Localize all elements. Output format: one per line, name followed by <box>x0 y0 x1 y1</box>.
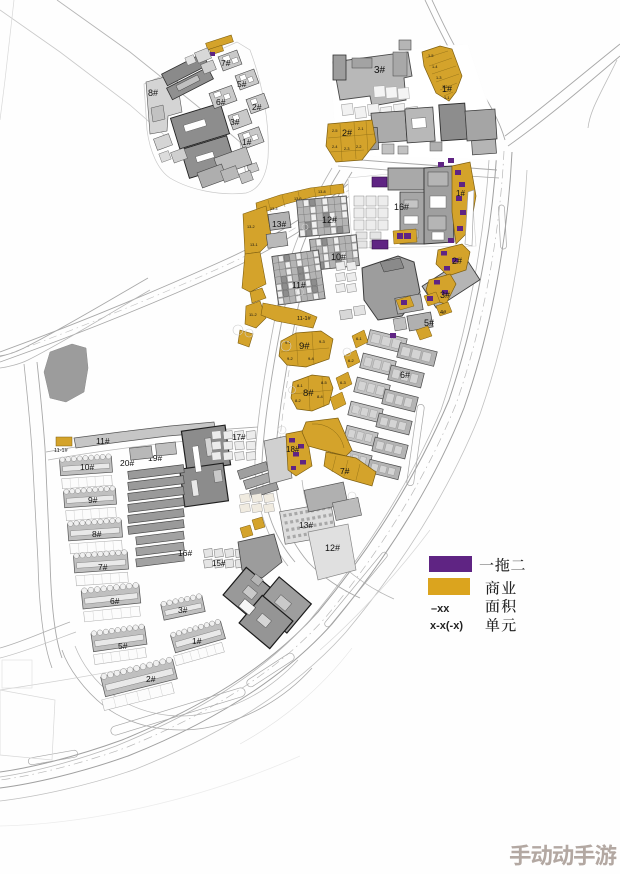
svg-text:15#: 15# <box>212 559 226 568</box>
svg-text:8-1: 8-1 <box>297 383 304 388</box>
svg-text:8-2: 8-2 <box>295 398 302 403</box>
svg-text:12#: 12# <box>325 543 340 553</box>
svg-text:8#: 8# <box>148 88 158 98</box>
svg-text:11-1#: 11-1# <box>297 316 312 322</box>
svg-text:–xx: –xx <box>431 603 450 615</box>
svg-text:13#: 13# <box>272 219 286 229</box>
svg-text:1-4: 1-4 <box>432 65 438 69</box>
svg-text:6-2: 6-2 <box>348 358 355 363</box>
svg-text:6#: 6# <box>110 596 120 606</box>
svg-text:13#: 13# <box>299 520 313 530</box>
svg-text:8#: 8# <box>303 388 314 399</box>
svg-text:3#: 3# <box>230 117 240 127</box>
svg-text:9-4: 9-4 <box>308 356 315 361</box>
svg-text:2#: 2# <box>146 674 156 684</box>
svg-text:1#: 1# <box>192 636 202 646</box>
svg-text:1-5: 1-5 <box>428 54 434 58</box>
svg-text:1#: 1# <box>242 137 252 147</box>
svg-text:5#: 5# <box>424 318 434 328</box>
svg-text:4#: 4# <box>440 310 447 316</box>
svg-text:5#: 5# <box>118 641 128 651</box>
svg-text:7#: 7# <box>98 562 108 572</box>
svg-text:3#: 3# <box>374 65 386 76</box>
svg-text:5#: 5# <box>237 79 247 89</box>
svg-text:9-3: 9-3 <box>319 339 326 344</box>
svg-text:18#: 18# <box>286 445 300 454</box>
svg-text:1-1: 1-1 <box>444 96 450 100</box>
svg-text:8-5: 8-5 <box>321 380 328 385</box>
svg-text:6-1: 6-1 <box>356 336 363 341</box>
svg-text:9#: 9# <box>88 495 98 505</box>
svg-text:13-1: 13-1 <box>250 243 258 247</box>
svg-text:10#: 10# <box>331 252 346 262</box>
svg-text:11-2: 11-2 <box>249 312 257 317</box>
svg-text:11-1#: 11-1# <box>54 448 69 454</box>
svg-text:3#: 3# <box>440 290 450 300</box>
svg-text:8-4: 8-4 <box>317 394 324 399</box>
svg-text:6#: 6# <box>400 370 410 380</box>
svg-text:1#: 1# <box>456 189 465 198</box>
svg-text:10#: 10# <box>80 462 94 472</box>
svg-text:12#: 12# <box>322 215 337 225</box>
svg-text:2#: 2# <box>252 102 262 112</box>
svg-text:7#: 7# <box>221 58 231 68</box>
svg-text:6-3: 6-3 <box>340 380 347 385</box>
svg-text:13-4: 13-4 <box>270 207 278 211</box>
svg-text:2-4: 2-4 <box>332 145 338 149</box>
svg-text:x-x(-x): x-x(-x) <box>430 620 463 632</box>
svg-text:6#: 6# <box>216 97 226 107</box>
svg-text:13-8: 13-8 <box>318 190 326 194</box>
svg-text:9-2: 9-2 <box>287 356 294 361</box>
svg-text:2#: 2# <box>452 256 462 266</box>
svg-text:8#: 8# <box>92 529 102 539</box>
svg-text:16#: 16# <box>394 202 409 212</box>
svg-text:1-3: 1-3 <box>436 76 442 80</box>
svg-text:11#: 11# <box>96 436 110 446</box>
svg-text:13-2: 13-2 <box>247 225 255 229</box>
svg-text:1-2: 1-2 <box>442 85 448 89</box>
svg-text:3#: 3# <box>178 605 188 615</box>
svg-text:16#: 16# <box>178 548 192 558</box>
svg-text:2-2: 2-2 <box>356 145 362 149</box>
svg-text:9#: 9# <box>299 341 310 352</box>
svg-text:17#: 17# <box>232 433 246 442</box>
svg-text:2-3: 2-3 <box>344 147 350 151</box>
svg-text:7#: 7# <box>340 466 350 476</box>
svg-text:2#: 2# <box>342 128 352 138</box>
svg-text:2-5: 2-5 <box>332 129 338 133</box>
svg-text:2-1: 2-1 <box>358 127 364 131</box>
